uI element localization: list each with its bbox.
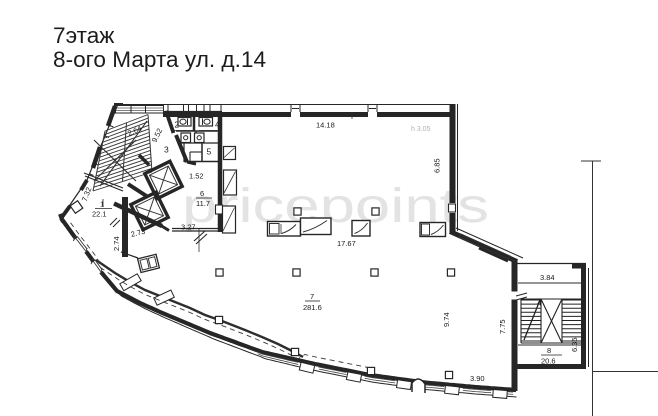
svg-text:7: 7	[310, 292, 314, 301]
svg-text:h 3.05: h 3.05	[411, 126, 431, 133]
svg-text:3.84: 3.84	[540, 273, 555, 282]
svg-text:5: 5	[207, 147, 212, 157]
svg-text:4: 4	[215, 121, 220, 130]
svg-text:2: 2	[175, 121, 180, 130]
svg-text:8: 8	[547, 346, 551, 355]
svg-text:3.90: 3.90	[470, 374, 485, 383]
svg-text:6.35: 6.35	[570, 337, 579, 352]
svg-text:281.6: 281.6	[303, 303, 322, 312]
svg-text:1.52: 1.52	[189, 172, 204, 181]
svg-text:22.1: 22.1	[92, 210, 107, 219]
svg-text:14.18: 14.18	[316, 121, 335, 130]
svg-text:3: 3	[164, 145, 169, 155]
svg-text:20.6: 20.6	[541, 357, 556, 366]
svg-text:2.73: 2.73	[130, 227, 146, 239]
svg-text:6: 6	[200, 189, 204, 198]
svg-text:1: 1	[100, 200, 104, 209]
svg-text:9.52: 9.52	[150, 127, 164, 144]
svg-text:11.7: 11.7	[196, 199, 210, 208]
svg-text:7.75: 7.75	[498, 319, 507, 334]
svg-text:3.27: 3.27	[181, 223, 196, 232]
svg-text:6.85: 6.85	[433, 158, 442, 173]
svg-text:17.67: 17.67	[337, 239, 356, 248]
svg-text:2.74: 2.74	[112, 236, 121, 251]
svg-text:9.74: 9.74	[442, 312, 451, 327]
